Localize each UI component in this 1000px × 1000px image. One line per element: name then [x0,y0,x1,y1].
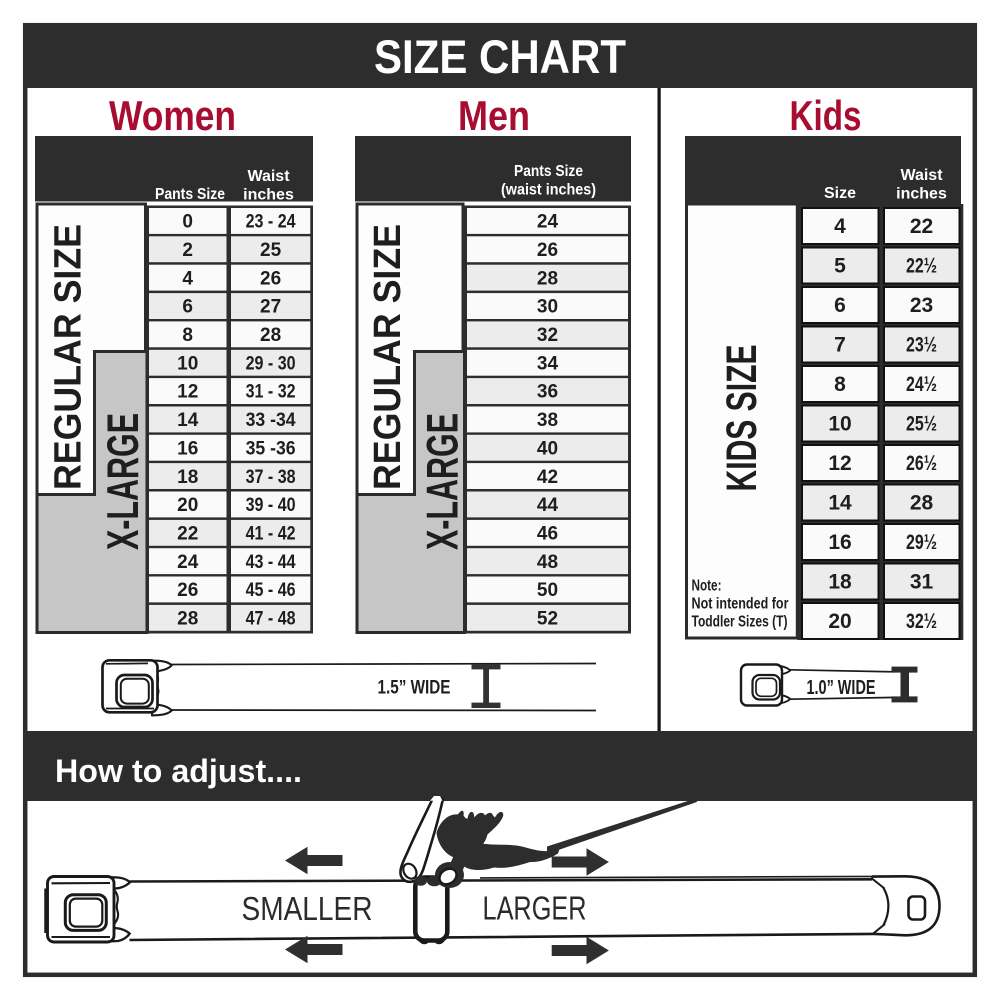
svg-text:Not intended for: Not intended for [692,596,789,613]
svg-text:X-LARGE: X-LARGE [99,413,148,550]
svg-text:Women: Women [109,92,236,139]
svg-text:10: 10 [828,413,851,436]
svg-text:inches: inches [896,186,947,203]
svg-text:25½: 25½ [906,413,937,436]
svg-text:24: 24 [177,552,199,573]
svg-text:4: 4 [182,268,193,289]
svg-text:16: 16 [828,531,851,554]
svg-text:31 - 32: 31 - 32 [246,382,296,403]
svg-text:Pants Size: Pants Size [514,163,583,180]
svg-text:24: 24 [537,212,559,233]
svg-text:12: 12 [177,382,198,403]
svg-text:Waist: Waist [247,168,290,185]
svg-text:20: 20 [828,610,851,633]
svg-text:12: 12 [828,452,851,475]
svg-text:Note:: Note: [692,577,722,594]
svg-text:28: 28 [260,325,281,346]
svg-text:41 - 42: 41 - 42 [246,523,296,544]
svg-text:44: 44 [537,495,559,516]
svg-text:22½: 22½ [906,255,937,278]
svg-text:14: 14 [177,410,199,431]
svg-text:18: 18 [177,467,198,488]
svg-text:23: 23 [910,294,933,317]
svg-text:REGULAR SIZE: REGULAR SIZE [367,224,409,490]
svg-text:20: 20 [177,495,198,516]
svg-text:Size: Size [824,185,856,202]
svg-text:inches: inches [243,187,294,204]
svg-text:10: 10 [177,353,198,374]
svg-text:22: 22 [910,215,933,238]
svg-text:34: 34 [537,353,559,374]
svg-text:23½: 23½ [906,334,937,357]
svg-text:22: 22 [177,523,198,544]
svg-text:31: 31 [910,571,934,594]
svg-text:32½: 32½ [906,610,937,633]
svg-text:Men: Men [458,92,530,139]
svg-text:46: 46 [537,523,558,544]
svg-text:48: 48 [537,552,558,573]
svg-text:47 - 48: 47 - 48 [246,609,296,630]
svg-text:6: 6 [182,297,193,318]
svg-text:26½: 26½ [906,452,937,475]
svg-text:(waist inches): (waist inches) [501,182,596,199]
svg-text:How to adjust....: How to adjust.... [55,753,302,789]
svg-text:REGULAR SIZE: REGULAR SIZE [48,224,90,490]
svg-text:LARGER: LARGER [483,889,587,926]
svg-text:35 -36: 35 -36 [246,438,296,459]
svg-text:SIZE CHART: SIZE CHART [374,30,626,83]
svg-text:40: 40 [537,438,558,459]
svg-text:32: 32 [537,325,558,346]
svg-text:43 - 44: 43 - 44 [246,552,296,573]
svg-text:Toddler Sizes (T): Toddler Sizes (T) [692,614,788,631]
svg-text:38: 38 [537,410,558,431]
svg-text:37 - 38: 37 - 38 [246,467,296,488]
svg-text:27: 27 [260,297,281,318]
svg-text:16: 16 [177,438,198,459]
svg-text:24½: 24½ [906,373,937,396]
svg-text:25: 25 [260,240,282,261]
svg-text:23 - 24: 23 - 24 [246,212,296,233]
svg-text:Waist: Waist [900,167,943,184]
svg-text:30: 30 [537,297,558,318]
svg-text:2: 2 [182,240,193,261]
svg-text:Pants Size: Pants Size [155,186,225,203]
svg-text:28: 28 [537,268,558,289]
svg-text:28: 28 [177,609,198,630]
svg-text:4: 4 [834,215,846,238]
svg-text:X-LARGE: X-LARGE [419,413,468,550]
svg-text:8: 8 [182,325,193,346]
svg-text:7: 7 [834,334,846,357]
svg-text:18: 18 [828,571,852,594]
svg-text:29½: 29½ [906,531,937,554]
svg-text:45 - 46: 45 - 46 [246,580,296,601]
svg-text:KIDS SIZE: KIDS SIZE [719,345,766,492]
svg-text:14: 14 [828,492,852,515]
svg-text:29 - 30: 29 - 30 [246,353,296,374]
svg-text:SMALLER: SMALLER [242,890,373,927]
svg-text:26: 26 [177,580,198,601]
svg-text:39 - 40: 39 - 40 [246,495,296,516]
svg-text:8: 8 [834,373,846,396]
svg-text:1.0” WIDE: 1.0” WIDE [807,677,876,699]
svg-text:26: 26 [537,240,558,261]
svg-text:6: 6 [834,294,846,317]
svg-text:28: 28 [910,492,934,515]
svg-text:52: 52 [537,609,558,630]
svg-text:1.5” WIDE: 1.5” WIDE [378,678,451,699]
svg-text:50: 50 [537,580,558,601]
svg-text:5: 5 [834,255,846,278]
svg-text:0: 0 [182,212,193,233]
svg-text:36: 36 [537,382,558,403]
svg-text:Kids: Kids [790,92,862,139]
svg-text:42: 42 [537,467,558,488]
svg-text:33 -34: 33 -34 [246,410,296,431]
svg-text:26: 26 [260,268,281,289]
